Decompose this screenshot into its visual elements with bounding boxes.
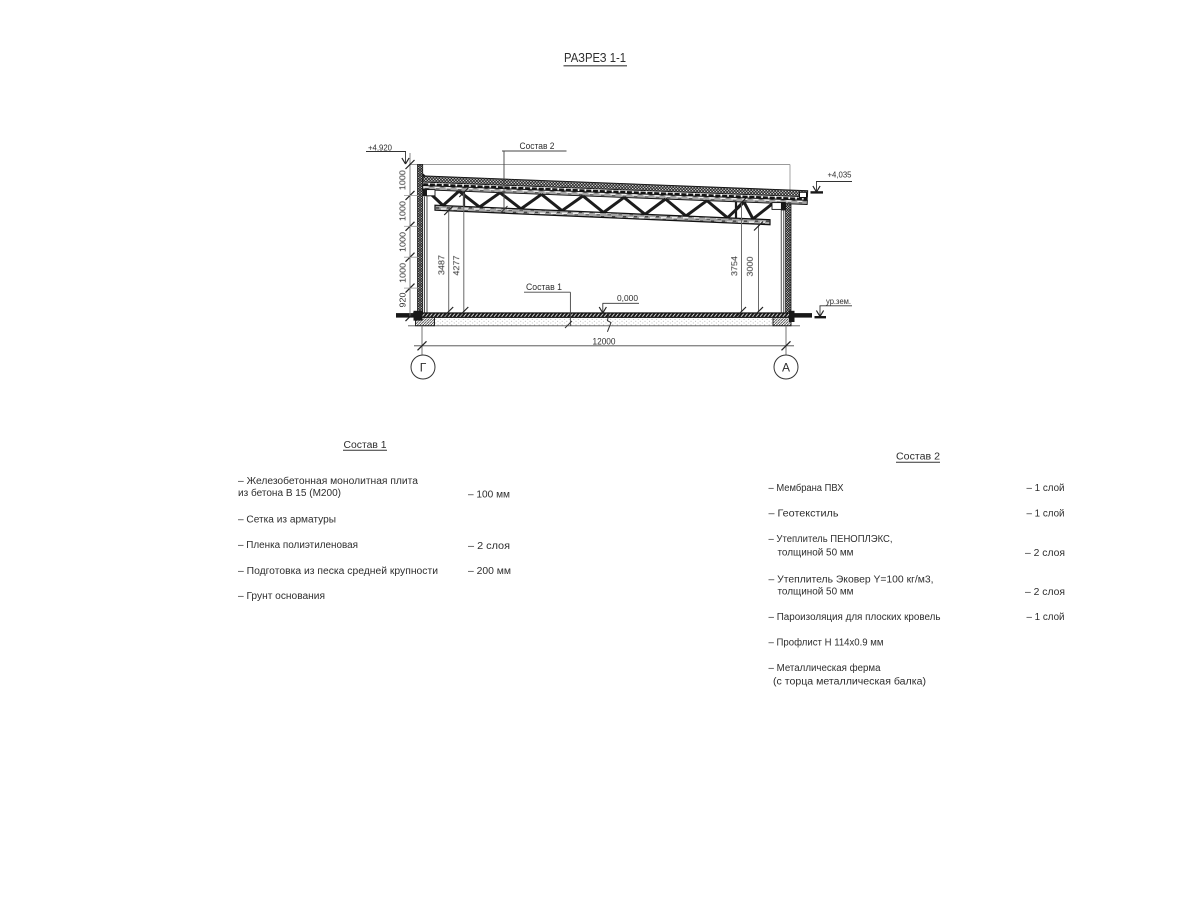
svg-text:– Металлическая ферма: – Металлическая ферма [769, 662, 881, 674]
svg-text:– 2 слоя: – 2 слоя [1025, 587, 1065, 598]
svg-text:Состав 2: Состав 2 [520, 141, 555, 152]
svg-text:– 200 мм: – 200 мм [468, 566, 511, 577]
svg-text:А: А [782, 361, 790, 375]
svg-text:– Пароизоляция для плоских кро: – Пароизоляция для плоских кровель [769, 612, 941, 623]
svg-text:РАЗРЕЗ 1-1: РАЗРЕЗ 1-1 [564, 51, 626, 65]
svg-text:– Утеплитель ПЕНОПЛЭКС,: – Утеплитель ПЕНОПЛЭКС, [769, 534, 893, 545]
svg-text:– 2 слоя: – 2 слоя [1025, 548, 1065, 559]
svg-text:– 1 слой: – 1 слой [1027, 509, 1065, 520]
svg-text:3754: 3754 [730, 255, 739, 276]
svg-text:толщиной 50 мм: толщиной 50 мм [778, 547, 854, 558]
svg-text:– Мембрана ПВХ: – Мембрана ПВХ [769, 482, 844, 494]
svg-text:– Утеплитель Эковер Y=100 кг/м: – Утеплитель Эковер Y=100 кг/м3, [769, 575, 934, 586]
svg-text:из бетона В 15 (М200): из бетона В 15 (М200) [238, 487, 341, 499]
svg-text:– 100 мм: – 100 мм [468, 490, 510, 501]
svg-text:12000: 12000 [593, 337, 616, 347]
svg-text:– Подготовка из песка средней: – Подготовка из песка средней крупности [238, 566, 438, 577]
svg-text:– 1 слой: – 1 слой [1027, 483, 1065, 494]
svg-text:Состав 2: Состав 2 [896, 452, 940, 463]
svg-text:Состав 1: Состав 1 [526, 282, 562, 293]
svg-text:920: 920 [399, 292, 408, 308]
svg-text:– Пленка полиэтиленовая: – Пленка полиэтиленовая [238, 540, 358, 551]
svg-text:Состав 1: Состав 1 [344, 440, 387, 451]
svg-text:толщиной 50 мм: толщиной 50 мм [778, 587, 854, 598]
svg-text:(с торца металлическая балка): (с торца металлическая балка) [773, 676, 926, 688]
svg-text:0,000: 0,000 [617, 293, 638, 303]
svg-text:1000: 1000 [399, 262, 408, 283]
svg-text:– Сетка из арматуры: – Сетка из арматуры [238, 515, 336, 526]
svg-text:1000: 1000 [399, 200, 408, 221]
svg-text:1000: 1000 [399, 170, 408, 191]
svg-text:3000: 3000 [746, 256, 755, 277]
svg-text:– 2 слоя: – 2 слоя [468, 541, 510, 552]
svg-text:1000: 1000 [399, 231, 408, 252]
svg-text:– Геотекстиль: – Геотекстиль [769, 509, 839, 520]
svg-text:ур.зем.: ур.зем. [826, 296, 851, 306]
svg-text:+4,920: +4,920 [368, 143, 392, 153]
svg-text:Г: Г [420, 361, 427, 375]
svg-text:3487: 3487 [437, 254, 446, 275]
svg-text:– Грунт основания: – Грунт основания [238, 591, 325, 602]
svg-text:– 1 слой: – 1 слой [1027, 612, 1065, 623]
svg-text:+4,035: +4,035 [828, 170, 852, 180]
svg-text:– Железобетонная монолитная п: – Железобетонная монолитная плита [238, 475, 418, 487]
svg-text:– Профлист Н 114х0.9 мм: – Профлист Н 114х0.9 мм [769, 637, 884, 649]
svg-text:4277: 4277 [452, 255, 461, 276]
